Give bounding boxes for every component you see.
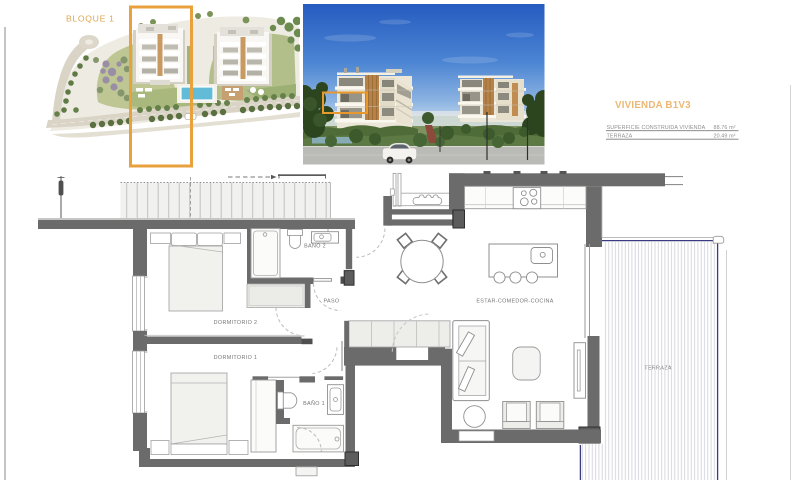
svg-text:BLOQUE 1: BLOQUE 1 <box>66 14 115 24</box>
svg-text:TERRAZA: TERRAZA <box>607 133 633 139</box>
svg-text:SUPERFICIE CONSTRUIDA VIVIENDA: SUPERFICIE CONSTRUIDA VIVIENDA <box>607 125 706 131</box>
svg-text:BAÑO 1: BAÑO 1 <box>303 400 325 407</box>
svg-text:ESTAR-COMEDOR-COCINA: ESTAR-COMEDOR-COCINA <box>476 299 553 305</box>
svg-text:DORMITORIO 2: DORMITORIO 2 <box>214 320 258 326</box>
svg-text:DORMITORIO 1: DORMITORIO 1 <box>214 355 258 361</box>
svg-text:PASO: PASO <box>324 298 340 304</box>
svg-text:88.76 m²: 88.76 m² <box>714 125 736 131</box>
svg-text:BAÑO 2: BAÑO 2 <box>304 243 326 250</box>
svg-text:20.49 m²: 20.49 m² <box>714 133 736 139</box>
svg-text:VIVIENDA B1V3: VIVIENDA B1V3 <box>615 100 691 111</box>
